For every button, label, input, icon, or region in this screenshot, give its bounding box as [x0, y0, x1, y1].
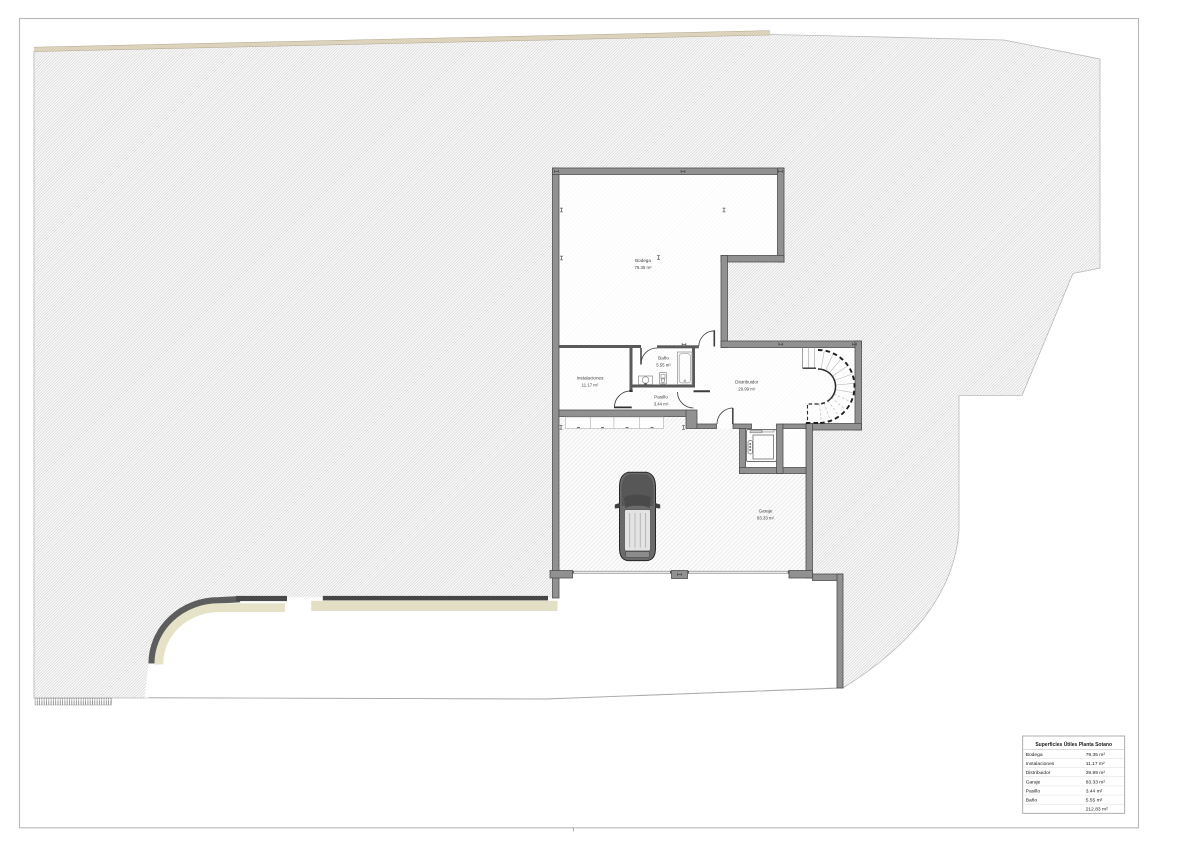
svg-text:212.83 m²: 212.83 m² [1086, 807, 1108, 813]
svg-text:Instalaciones: Instalaciones [1026, 761, 1055, 767]
svg-text:Instalaciones: Instalaciones [577, 376, 605, 381]
svg-text:Distribuidor: Distribuidor [735, 380, 759, 385]
svg-text:11.17 m²: 11.17 m² [582, 383, 599, 388]
svg-text:79.35 m²: 79.35 m² [1086, 752, 1106, 758]
svg-text:Garaje: Garaje [759, 509, 773, 514]
svg-text:Baño: Baño [1026, 798, 1038, 804]
svg-text:Bodega: Bodega [635, 258, 651, 263]
svg-text:Superficies Útiles Planta Sota: Superficies Útiles Planta Sotano [1035, 741, 1112, 748]
svg-text:11.17 m²: 11.17 m² [1086, 761, 1105, 767]
svg-text:83.33 m²: 83.33 m² [1086, 779, 1106, 785]
svg-text:29.99 m²: 29.99 m² [738, 387, 756, 392]
svg-text:Distribuidor: Distribuidor [1026, 770, 1051, 776]
svg-text:Garaje: Garaje [1026, 779, 1041, 785]
svg-text:5.55 m²: 5.55 m² [656, 363, 671, 368]
svg-text:Bodega: Bodega [1026, 752, 1043, 758]
svg-text:Baño: Baño [658, 356, 669, 361]
svg-text:3.44 m²: 3.44 m² [1086, 788, 1103, 794]
svg-text:5.55 m²: 5.55 m² [1086, 798, 1103, 804]
svg-text:29.99 m²: 29.99 m² [1086, 770, 1106, 776]
svg-text:79.35 m²: 79.35 m² [634, 265, 652, 270]
svg-text:83.33 m²: 83.33 m² [757, 516, 775, 521]
svg-text:3.44 m²: 3.44 m² [654, 402, 669, 407]
svg-text:Pasillo: Pasillo [1026, 788, 1041, 794]
svg-text:Pasillo: Pasillo [654, 395, 668, 400]
